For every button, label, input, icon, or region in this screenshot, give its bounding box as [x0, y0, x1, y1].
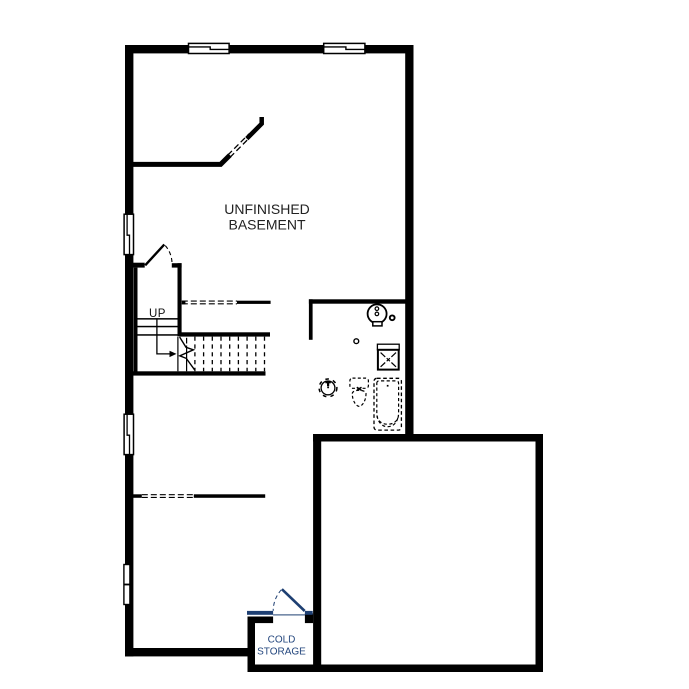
- svg-text:UNFINISHED: UNFINISHED: [224, 201, 310, 217]
- svg-text:COLD: COLD: [268, 634, 296, 645]
- svg-text:STORAGE: STORAGE: [257, 646, 306, 657]
- svg-text:BASEMENT: BASEMENT: [228, 217, 305, 233]
